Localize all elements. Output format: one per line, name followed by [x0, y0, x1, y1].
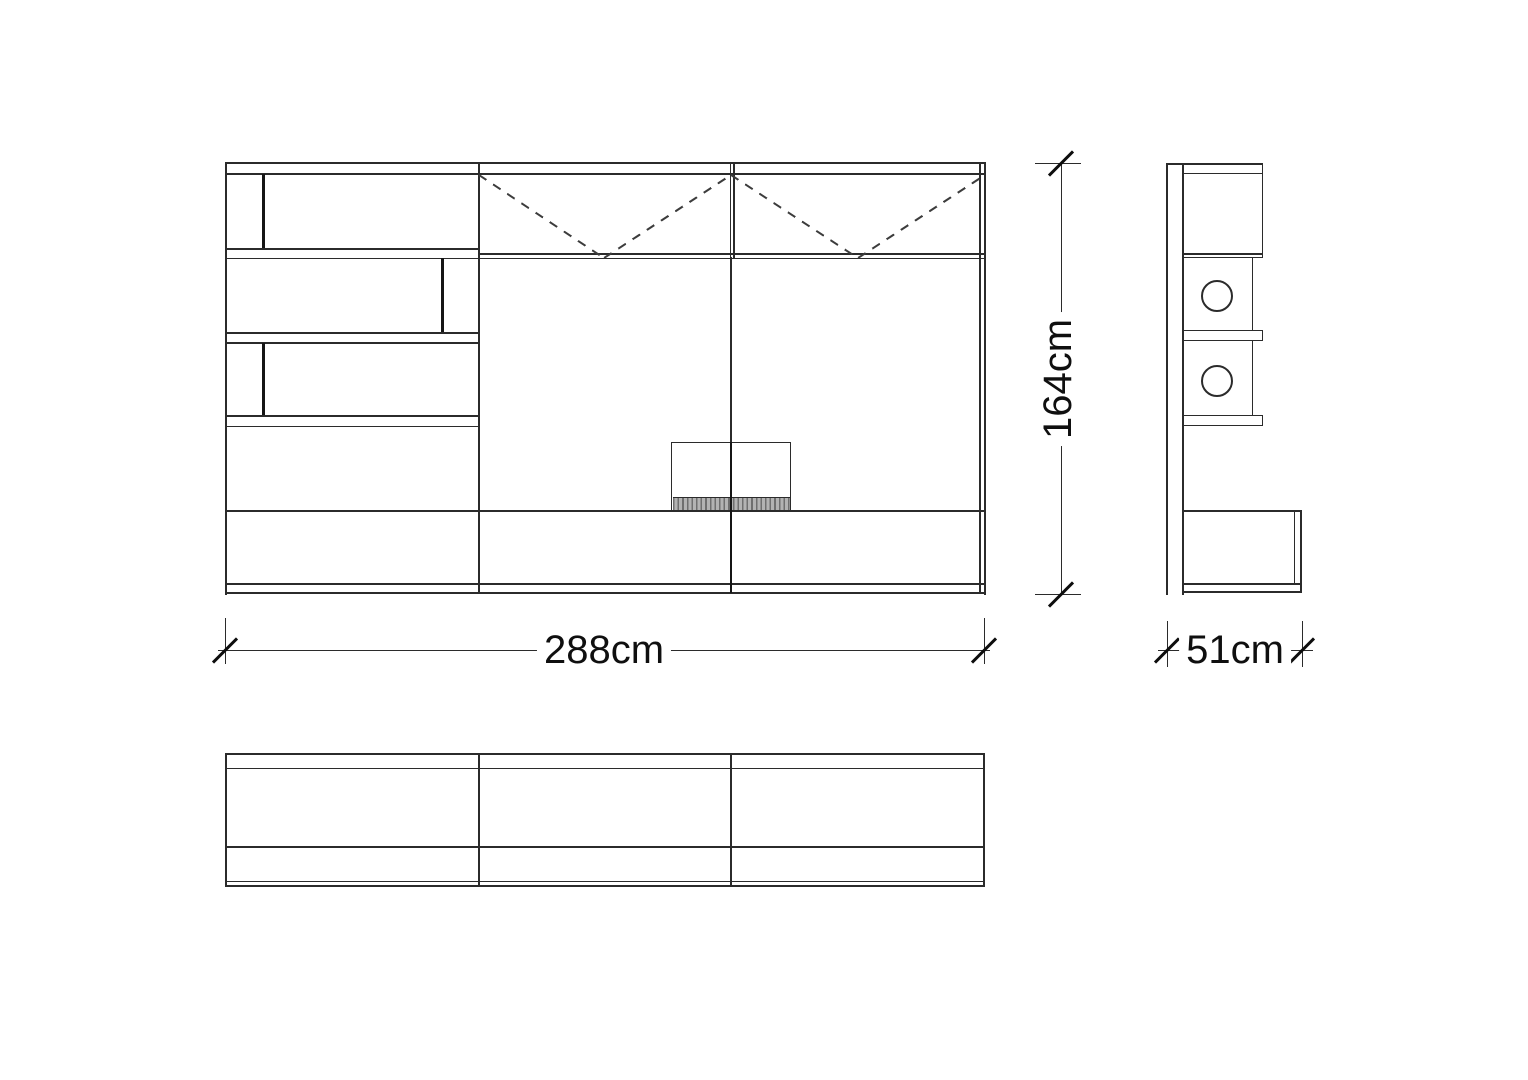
extension-line	[1302, 621, 1304, 667]
shelf-partition	[441, 258, 444, 332]
height-dimension-label: 164cm	[1037, 312, 1079, 446]
side-bench-bottom	[1183, 591, 1302, 593]
front-left-edge	[225, 162, 227, 595]
section-divider-left	[478, 162, 480, 594]
extension-line	[225, 618, 227, 664]
depth-dimension-label: 51cm	[1179, 629, 1291, 671]
shelf-line	[225, 426, 479, 428]
flap-door-symbol	[731, 174, 859, 259]
front-right-edge	[984, 162, 986, 595]
front-right-edge-inner	[979, 162, 981, 592]
extension-line	[1167, 621, 1169, 667]
side-niche2-front	[1252, 341, 1254, 416]
flap-door-symbol	[604, 174, 732, 259]
side-top-edge	[1166, 163, 1263, 165]
side-top-panel-line	[1183, 173, 1263, 175]
side-bench-front-inner	[1294, 510, 1296, 584]
shelf-partition	[262, 174, 265, 248]
cable-hole	[1201, 365, 1233, 397]
plan-divider	[730, 753, 732, 887]
side-niche1-front	[1252, 257, 1254, 331]
bench-top-line	[225, 510, 986, 512]
side-top-box-bottom-a	[1183, 253, 1263, 255]
side-bench-bottom-inner	[1183, 583, 1302, 585]
shelf-partition	[262, 343, 265, 415]
shelf-line	[225, 415, 479, 417]
side-top-box-right	[1262, 163, 1264, 257]
top-panel-line	[225, 173, 985, 175]
side-shelf	[1183, 330, 1263, 341]
bench-bottom-inner-line	[225, 583, 986, 585]
flap-bottom-line	[479, 253, 985, 255]
side-bench-front-outer	[1300, 510, 1302, 593]
side-back-panel-inner	[1182, 163, 1184, 595]
plan-front-line	[225, 846, 985, 848]
shelf-line	[225, 332, 479, 334]
extension-line	[984, 618, 986, 664]
cable-hole	[1201, 280, 1233, 312]
door-divider-through-box	[730, 442, 732, 593]
plan-divider	[478, 753, 480, 887]
front-bottom-edge	[225, 592, 986, 594]
shelf-line	[225, 248, 479, 250]
flap-door-symbol	[858, 174, 986, 259]
width-dimension-label: 288cm	[537, 629, 671, 671]
front-top-edge	[225, 162, 986, 164]
side-shelf	[1183, 415, 1263, 426]
plan-outline	[225, 753, 985, 887]
side-bench-top	[1183, 510, 1302, 512]
flap-door-symbol	[479, 174, 605, 258]
side-back-panel-outer	[1166, 163, 1168, 595]
plan-edge-line	[225, 881, 985, 883]
plan-back-line	[225, 768, 985, 770]
technical-drawing: 164cm 288cm 51cm	[0, 0, 1528, 1080]
